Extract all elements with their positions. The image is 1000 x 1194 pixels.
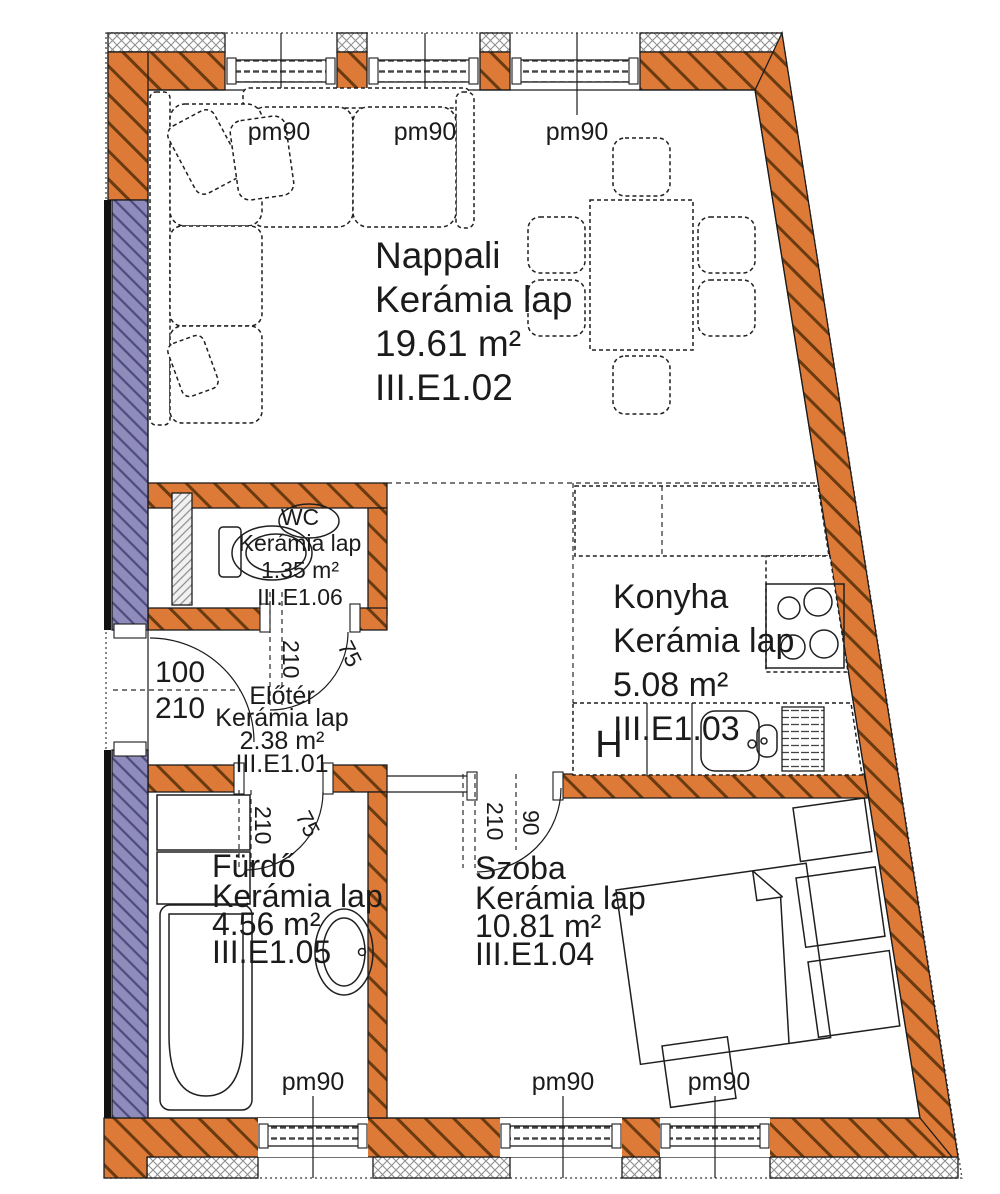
nightstand — [808, 951, 900, 1038]
wall-facing-bottom — [104, 750, 111, 1118]
wall-wc-right — [368, 508, 387, 615]
entry-height: 210 — [155, 692, 205, 725]
bathroom-cabinet — [157, 795, 250, 850]
szoba-door-height: 210 — [482, 802, 508, 840]
room-label-szoba: Szoba Kerámia lap 10.81 m² III.E1.04 — [475, 850, 646, 972]
parapet-label: pm90 — [248, 118, 311, 146]
wall-top-pier-2 — [337, 52, 367, 90]
wall-furdo-top-left — [148, 765, 242, 792]
floorplan: Nappali Kerámia lap 19.61 m² III.E1.02 W… — [0, 0, 1000, 1194]
wall-szoba-top — [562, 774, 869, 798]
room-name: Konyha — [613, 578, 728, 616]
wc-door-height: 210 — [278, 640, 304, 678]
nightstand — [796, 867, 885, 947]
room-code: III.E1.06 — [257, 584, 343, 610]
szoba-door-width: 90 — [518, 810, 544, 836]
room-area: 5.08 m² — [613, 666, 728, 704]
room-area: 1.35 m² — [261, 557, 339, 583]
chair — [613, 138, 670, 196]
insulated-left-wall — [104, 200, 148, 1118]
window-bottom-3 — [660, 1096, 770, 1178]
parapet-label: pm90 — [394, 118, 457, 146]
wall-facing-top — [104, 200, 111, 630]
wall-furdo-szoba — [368, 792, 387, 1118]
window-bottom-1 — [258, 1096, 368, 1178]
window-top-3 — [512, 33, 638, 115]
wc-door-width: 75 — [333, 636, 368, 671]
room-code: III.E1.04 — [475, 936, 594, 972]
room-label-furdo: Fürdő Kerámia lap 4.56 m² III.E1.05 — [212, 848, 383, 970]
fridge-label: H — [595, 724, 622, 766]
room-floor: Kerámia lap — [239, 530, 362, 556]
wall-left-top — [108, 52, 148, 200]
dish-drainer — [782, 707, 824, 771]
bedroom-furniture — [616, 798, 900, 1107]
chair — [613, 356, 670, 414]
room-code: III.E1.03 — [613, 710, 740, 748]
room-code: III.E1.01 — [235, 750, 328, 778]
room-name: Nappali — [375, 235, 500, 276]
room-floor: Kerámia lap — [613, 622, 794, 660]
room-area: 19.61 m² — [375, 323, 521, 364]
chair — [528, 217, 585, 273]
kitchen-upper-cabinet — [575, 486, 829, 556]
parapet-label: pm90 — [532, 1068, 595, 1096]
room-code: III.E1.02 — [375, 367, 513, 408]
room-name: WC — [281, 504, 319, 530]
service-shaft — [172, 493, 192, 605]
floorplan-page: Nappali Kerámia lap 19.61 m² III.E1.02 W… — [0, 0, 1000, 1194]
room-floor: Kerámia lap — [375, 279, 572, 320]
room-code: III.E1.05 — [212, 934, 331, 970]
chair — [698, 217, 755, 273]
entry-width: 100 — [155, 656, 205, 689]
parapet-label: pm90 — [282, 1068, 345, 1096]
dining-table — [590, 200, 693, 350]
wall-furdo-top-right — [325, 765, 387, 792]
nightstand — [793, 798, 872, 861]
wall-wc-bottom-left — [148, 608, 268, 630]
wall-top-pier-3 — [480, 52, 510, 90]
room-label-wc: WC Kerámia lap 1.35 m² III.E1.06 — [239, 504, 362, 610]
parapet-label: pm90 — [546, 118, 609, 146]
chair — [698, 280, 755, 336]
parapet-label: pm90 — [688, 1068, 751, 1096]
window-bottom-2 — [500, 1096, 622, 1178]
furdo-door-height: 210 — [250, 806, 276, 844]
dining-set — [528, 138, 755, 414]
